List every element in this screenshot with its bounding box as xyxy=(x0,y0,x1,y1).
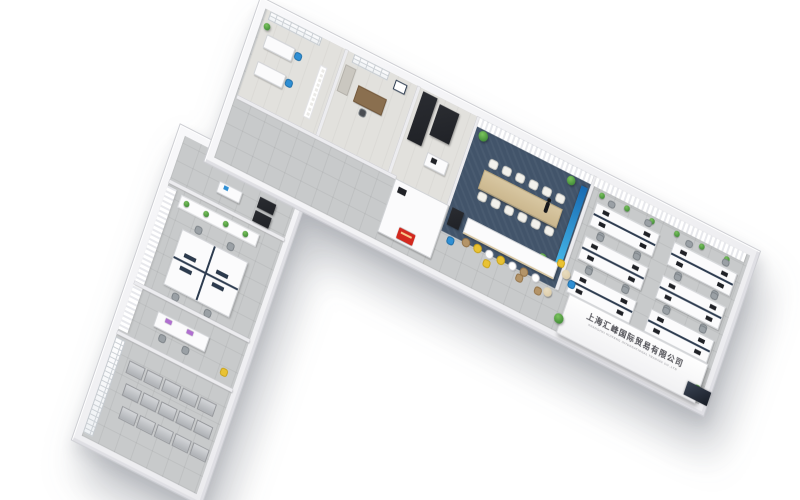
monitor-icon xyxy=(216,270,228,278)
laptop-icon xyxy=(643,231,651,238)
laptop-icon xyxy=(676,261,684,268)
potted-plant-icon xyxy=(183,200,190,208)
laptop-icon xyxy=(709,304,717,311)
desk-divider xyxy=(173,256,238,291)
laptop-icon xyxy=(653,328,661,335)
laptop-icon xyxy=(620,298,628,305)
laptop-icon xyxy=(698,337,706,344)
laptop-icon xyxy=(616,309,624,316)
laptop-icon xyxy=(717,282,725,289)
laptop-icon xyxy=(664,294,672,301)
potted-plant-icon xyxy=(203,210,210,218)
laptop-icon xyxy=(632,264,640,271)
building: 上海汇峰国际贸易有限公司 SHANGHAI HUIFENG INTERNATIO… xyxy=(43,0,778,500)
laptop-icon xyxy=(668,283,676,290)
laptop-icon xyxy=(598,221,606,228)
monitor-icon xyxy=(180,266,192,274)
laptop-icon xyxy=(591,243,599,250)
monitor-icon xyxy=(184,254,196,262)
laptop-icon xyxy=(657,316,665,323)
laptop-icon xyxy=(705,315,713,322)
potted-plant-icon xyxy=(242,230,249,238)
laptop-icon xyxy=(628,276,636,283)
laptop-icon xyxy=(694,349,702,356)
potted-plant-icon xyxy=(222,220,229,228)
office-floorplan-render: 上海汇峰国际贸易有限公司 SHANGHAI HUIFENG INTERNATIO… xyxy=(0,0,800,500)
laptop-icon xyxy=(575,288,583,295)
laptop-icon xyxy=(579,277,587,284)
laptop-icon xyxy=(587,255,595,262)
laptop-icon xyxy=(680,249,688,256)
monitor-icon xyxy=(212,283,224,291)
laptop-icon xyxy=(721,270,729,277)
laptop-icon xyxy=(602,210,610,217)
laptop-icon xyxy=(639,242,647,249)
